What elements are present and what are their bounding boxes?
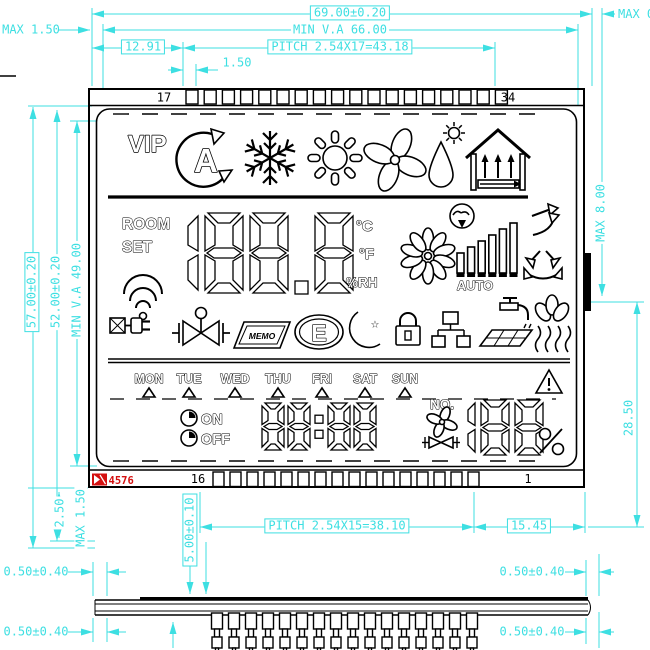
star-glyph: ☆ (371, 316, 380, 332)
room-label: ROOM (122, 216, 170, 233)
dim-pitch-bottom: PITCH 2.54X15=38.10 (264, 518, 409, 533)
dim-max-tail: MAX 1.50 (74, 487, 87, 549)
fahrenheit-unit: °F (359, 246, 374, 263)
power-plug-icon (110, 318, 150, 333)
flower-fan-icon (400, 228, 457, 284)
dim-left-offset: 12.91 (121, 39, 165, 54)
dim-overall-height: 57.00±0.20 (24, 252, 39, 332)
set-label: SET (122, 239, 153, 256)
house-ventilation-icon (466, 130, 530, 190)
auto-mode-icon: A (176, 129, 232, 187)
top-pin-row (186, 90, 507, 104)
lcd-engineering-drawing: 17 34 16 1 4576 VIP A (0, 0, 650, 650)
pin-number-top-first: 17 (157, 91, 171, 105)
day-wed: WED (220, 372, 249, 386)
dim-max-right: MAX 0. (618, 8, 650, 21)
timer-off-label: OFF (201, 432, 230, 448)
main-temperature-display (188, 213, 353, 294)
wifi-icon (124, 275, 162, 319)
airflow-up-icon (532, 204, 559, 235)
warning-icon (536, 370, 562, 393)
pin-number-bottom-left: 16 (191, 472, 205, 486)
vip-label: VIP (128, 131, 167, 158)
comfort-icon (450, 204, 474, 228)
valve-icon (172, 308, 230, 346)
airflow-swing-icon (524, 251, 562, 279)
dim-pitch-top: PITCH 2.54X17=43.18 (267, 39, 412, 54)
memo-label: MEMO (249, 331, 276, 341)
dim-thickness: 5.00±0.10 (182, 493, 197, 566)
snowflake-icon (243, 131, 297, 185)
humidity-drop-icon (429, 122, 465, 187)
celsius-unit: °C (356, 218, 373, 235)
dim-max-left: MAX 1.50 (2, 23, 60, 36)
humidity-unit: %RH (346, 275, 378, 290)
dim-pin-offset-left-top: 0.50±0.40 (3, 565, 68, 578)
timer-display (262, 403, 376, 450)
lock-icon (396, 313, 420, 345)
dim-min-va-height: MIN V.A 49.00 (70, 241, 83, 339)
side-view-pins (212, 613, 478, 650)
energy-class-icon: E (295, 315, 343, 349)
dim-overall-width: 69.00±0.20 (310, 5, 390, 20)
dim-right-offset: 15.45 (507, 518, 551, 533)
day-mon: MON (134, 372, 163, 386)
day-fri: FRI (312, 372, 332, 386)
small-valve-icon (422, 437, 460, 448)
svg-text:A: A (194, 142, 218, 179)
auto-fan-label: AUTO (457, 278, 494, 293)
dim-tail: 2.50 (53, 497, 66, 530)
dim-pin-offset-right-top: 0.50±0.40 (499, 565, 564, 578)
day-markers (143, 388, 411, 397)
fan-icon (361, 126, 429, 194)
hot-water-floor-icon (480, 298, 532, 346)
logo-code: 4576 (109, 475, 134, 487)
network-icon (432, 312, 470, 347)
memo-filter-icon: MEMO (234, 322, 290, 348)
day-tue: TUE (177, 372, 202, 386)
fan-speed-bars (457, 223, 518, 277)
day-thu: THU (265, 372, 291, 386)
day-sat: SAT (353, 372, 377, 386)
pin-number-top-last: 34 (501, 91, 515, 105)
night-mode-icon: ☆ (350, 312, 380, 347)
vent-arrows (482, 154, 515, 178)
energy-letter: E (311, 320, 326, 346)
sun-icon (308, 131, 362, 185)
timer-off-clock-icon (181, 430, 197, 446)
day-labels: MON TUE WED THU FRI SAT SUN (134, 372, 418, 386)
bottom-pin-row (213, 472, 479, 487)
dim-max-bump: MAX 8.00 (594, 182, 607, 244)
dim-pin-gap: 1.50 (223, 56, 252, 69)
pin-number-bottom-right: 1 (524, 472, 531, 486)
timer-on-clock-icon (181, 410, 197, 426)
floor-heating-icon (532, 295, 571, 352)
fan-percent-display (468, 400, 543, 455)
dim-inner-height: 52.00±0.20 (49, 254, 62, 330)
glass-bump (585, 253, 591, 311)
logo: 4576 (92, 474, 134, 488)
timer-on-label: ON (201, 412, 223, 428)
dim-pin-zone-height: 28.50 (622, 398, 635, 438)
day-sun: SUN (392, 372, 418, 386)
dim-pin-offset-left-bottom: 0.50±0.40 (3, 625, 68, 638)
dim-pin-offset-right-bottom: 0.50±0.40 (499, 625, 564, 638)
lcd-module: 17 34 16 1 4576 VIP A (88, 88, 585, 488)
dim-min-va-width: MIN V.A 66.00 (291, 23, 389, 36)
